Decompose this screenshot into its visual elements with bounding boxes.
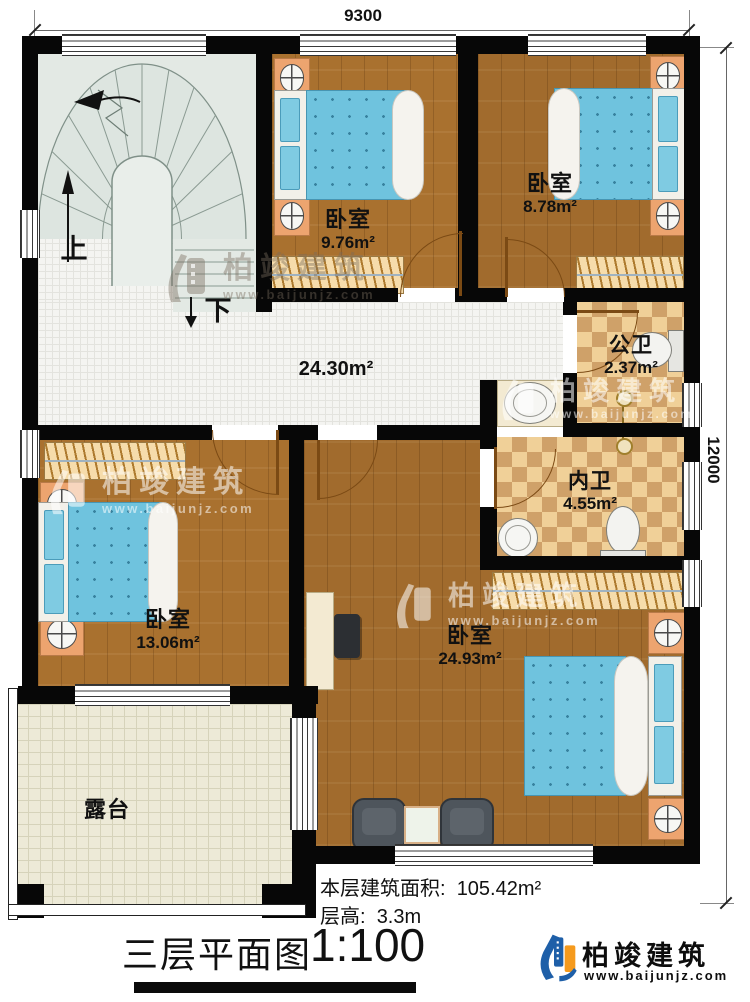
pillow	[654, 664, 674, 722]
door-leaf	[577, 310, 639, 313]
basin-icon	[498, 518, 538, 558]
page-title-scale: 1:100	[310, 918, 425, 972]
wall	[480, 380, 497, 449]
room-label-bedroom-top: 卧室9.76m²	[288, 208, 408, 252]
bed-mattress	[524, 656, 626, 796]
window	[20, 210, 40, 258]
pillow	[44, 564, 64, 614]
toilet-icon	[606, 506, 640, 554]
bed-blanket	[614, 656, 648, 796]
extension-line	[700, 903, 734, 904]
door-leaf	[276, 430, 279, 494]
window	[20, 430, 40, 478]
pillow	[658, 96, 678, 142]
pillow	[280, 98, 300, 142]
room-label-bedroom-left: 卧室13.06m²	[108, 608, 228, 652]
wall	[480, 556, 700, 570]
floor-plan-canvas: 上 下	[0, 0, 750, 1002]
pillow	[280, 146, 300, 190]
stair-down-label: 下	[196, 296, 240, 326]
terrace-door-window	[290, 718, 318, 830]
dimension-line-right	[726, 48, 727, 904]
wall	[22, 36, 38, 704]
plumbing-point-icon	[616, 438, 633, 455]
wall	[563, 423, 700, 437]
pillow	[654, 726, 674, 784]
wall	[256, 36, 272, 312]
wall	[563, 302, 577, 315]
wardrobe	[44, 442, 186, 480]
room-label-inner-bath: 内卫4.55m²	[530, 470, 650, 513]
dimension-line-top	[35, 30, 690, 31]
window	[528, 34, 646, 56]
window	[395, 844, 593, 866]
room-label-public-bath: 公卫2.37m²	[575, 334, 687, 377]
wall	[563, 373, 577, 430]
terrace-railing	[8, 904, 306, 916]
door-leaf	[317, 440, 320, 500]
page-title: 三层平面图	[122, 926, 312, 978]
room-label-terrace: 露台	[47, 798, 167, 823]
dimension-right-value: 12000	[703, 427, 723, 493]
plumbing-point-icon	[616, 390, 633, 407]
room-label-hall-area: 24.30m²	[276, 358, 396, 380]
window	[682, 383, 702, 427]
wall	[22, 425, 212, 440]
window	[300, 34, 456, 56]
room-label-bedroom-topright: 卧室8.78m²	[490, 172, 610, 216]
dimension-top-value: 9300	[330, 6, 396, 26]
pillow	[44, 510, 64, 560]
wall	[564, 288, 700, 302]
terrace-railing	[8, 688, 18, 920]
stair-down-arrow-icon	[182, 294, 200, 328]
spiral-staircase	[38, 54, 256, 312]
basin-icon	[504, 382, 556, 424]
nightstand-lamp	[648, 612, 688, 654]
brand-logo: 柏竣建筑 www.baijunjz.com	[538, 930, 738, 990]
wall	[377, 425, 480, 440]
floor-area-note: 本层建筑面积: 105.42m²	[320, 872, 541, 901]
wall	[289, 425, 304, 704]
door-leaf	[459, 231, 462, 296]
window	[682, 462, 702, 530]
door-leaf	[505, 237, 508, 297]
wall	[256, 288, 398, 302]
brand-url: www.baijunjz.com	[584, 968, 728, 983]
brand-logo-icon	[538, 932, 578, 984]
window	[75, 684, 230, 706]
wardrobe	[492, 572, 686, 610]
extension-line	[689, 10, 690, 36]
tv-console	[306, 592, 334, 690]
bed-blanket	[392, 90, 424, 200]
bed-blanket	[148, 502, 178, 622]
door-leaf	[494, 447, 497, 509]
stair-up-label: 上	[52, 234, 96, 264]
pillow	[658, 146, 678, 192]
nightstand-lamp	[650, 196, 686, 236]
nightstand-lamp	[648, 798, 688, 840]
window	[62, 34, 206, 56]
title-underline	[134, 982, 416, 993]
side-table	[404, 806, 440, 844]
wall	[684, 36, 700, 864]
window	[682, 560, 702, 607]
tv-icon	[334, 614, 360, 658]
extension-line	[700, 47, 734, 48]
room-label-bedroom-master: 卧室24.93m²	[410, 624, 530, 668]
